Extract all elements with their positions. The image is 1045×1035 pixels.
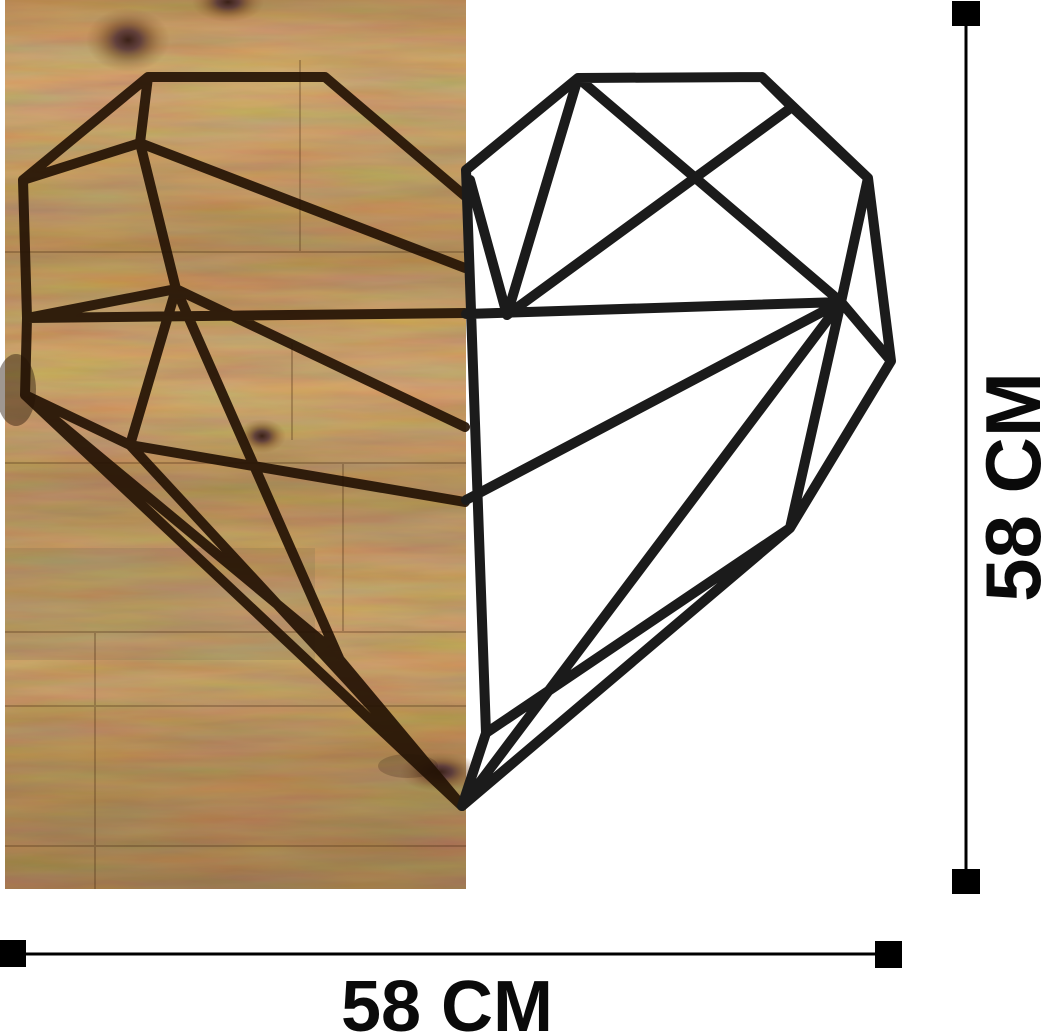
product-image: 58 CM 58 CM [0, 0, 1045, 1035]
height-dimension: 58 CM [952, 1, 1045, 894]
wood-knot [86, 8, 170, 72]
height-dimension-end-marker-bottom [952, 869, 980, 894]
width-dimension-end-marker-right [875, 941, 902, 968]
height-label: 58 CM [969, 372, 1045, 602]
product-image-canvas: 58 CM 58 CM [0, 0, 1045, 1035]
wall-art [0, 0, 891, 889]
metal-heart-right-half [462, 77, 891, 806]
width-label: 58 CM [341, 967, 553, 1035]
width-dimension-end-marker-left [0, 940, 26, 967]
height-dimension-end-marker-top [952, 1, 980, 26]
width-dimension: 58 CM [0, 940, 902, 1035]
wood-discolored-band [5, 548, 315, 660]
